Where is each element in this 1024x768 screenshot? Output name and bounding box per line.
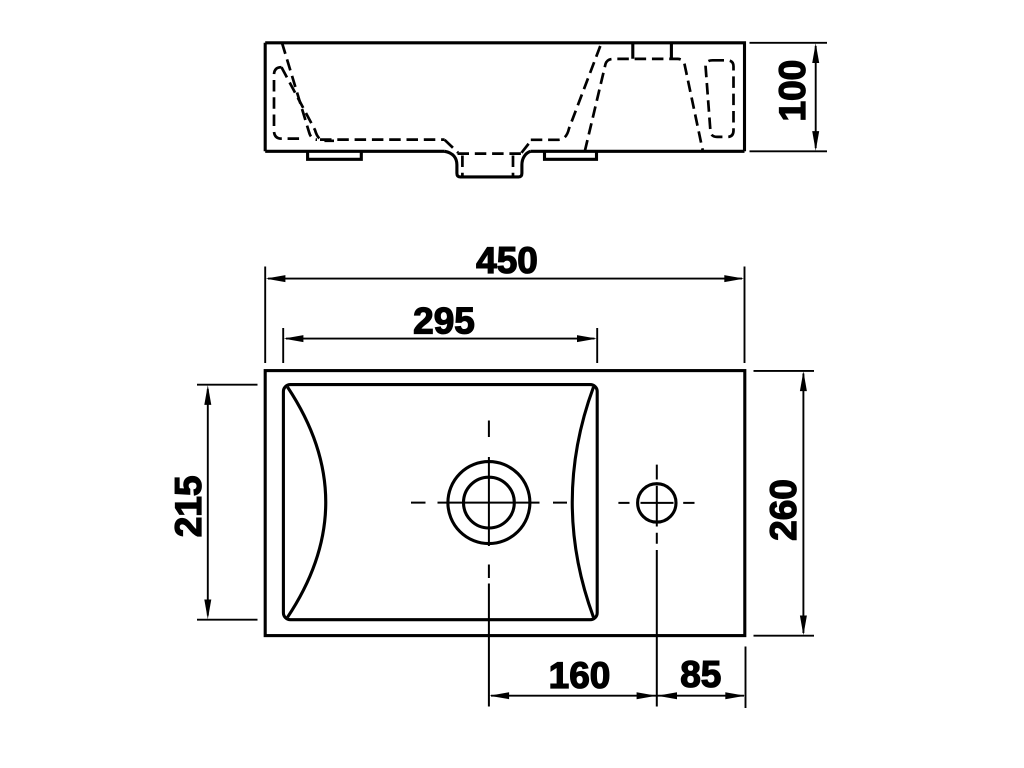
svg-text:260: 260 [763, 479, 804, 541]
svg-text:100: 100 [772, 60, 813, 122]
svg-text:85: 85 [680, 654, 721, 695]
svg-text:295: 295 [413, 300, 475, 341]
svg-text:450: 450 [476, 240, 538, 281]
svg-text:215: 215 [168, 476, 209, 538]
svg-text:160: 160 [549, 655, 611, 696]
